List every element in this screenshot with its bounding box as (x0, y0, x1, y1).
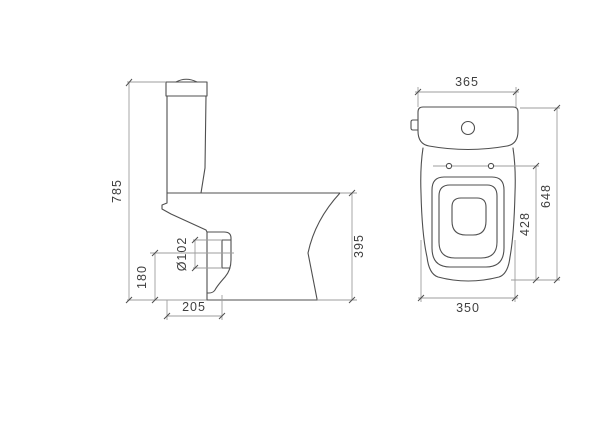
dim-seat-length: 428 (518, 163, 539, 283)
cistern-lid-profile (166, 82, 207, 96)
dim-cistern-width: 365 (415, 75, 519, 107)
dim-label-180: 180 (135, 265, 149, 289)
dim-label-205: 205 (182, 300, 206, 314)
toilet-dimension-drawing: 785 180 Ø102 205 395 (0, 0, 600, 424)
seat-hinge-hole-right (488, 163, 493, 168)
flush-button (462, 122, 475, 135)
side-view: 785 180 Ø102 205 395 (110, 79, 366, 320)
dim-label-785: 785 (110, 179, 124, 203)
outlet-moulding (207, 232, 231, 293)
dim-label-648: 648 (539, 184, 553, 208)
bowl-front-profile (308, 193, 340, 299)
front-view: 365 648 428 350 (411, 75, 560, 315)
dim-bowl-width: 350 (418, 240, 518, 315)
cistern-body-profile (167, 96, 206, 193)
inlet-tab (411, 120, 418, 130)
dim-outlet-setout: 205 (164, 295, 225, 320)
rim-inner-outline (439, 185, 497, 258)
dim-outlet-diameter: Ø102 (175, 237, 222, 272)
water-surface-outline (452, 198, 486, 235)
dim-label-395: 395 (352, 234, 366, 258)
outlet-pipe-face (222, 240, 231, 268)
dim-label-350: 350 (456, 301, 480, 315)
dim-label-102: Ø102 (175, 237, 189, 272)
dim-bowl-height: 395 (340, 190, 366, 303)
seat-hinge-hole-left (446, 163, 451, 168)
dim-label-365: 365 (455, 75, 479, 89)
cistern-front-outline (418, 107, 518, 150)
dim-label-428: 428 (518, 212, 532, 236)
technical-drawing-page: 785 180 Ø102 205 395 (0, 0, 600, 424)
dim-outlet-centre-height: 180 (135, 250, 158, 303)
